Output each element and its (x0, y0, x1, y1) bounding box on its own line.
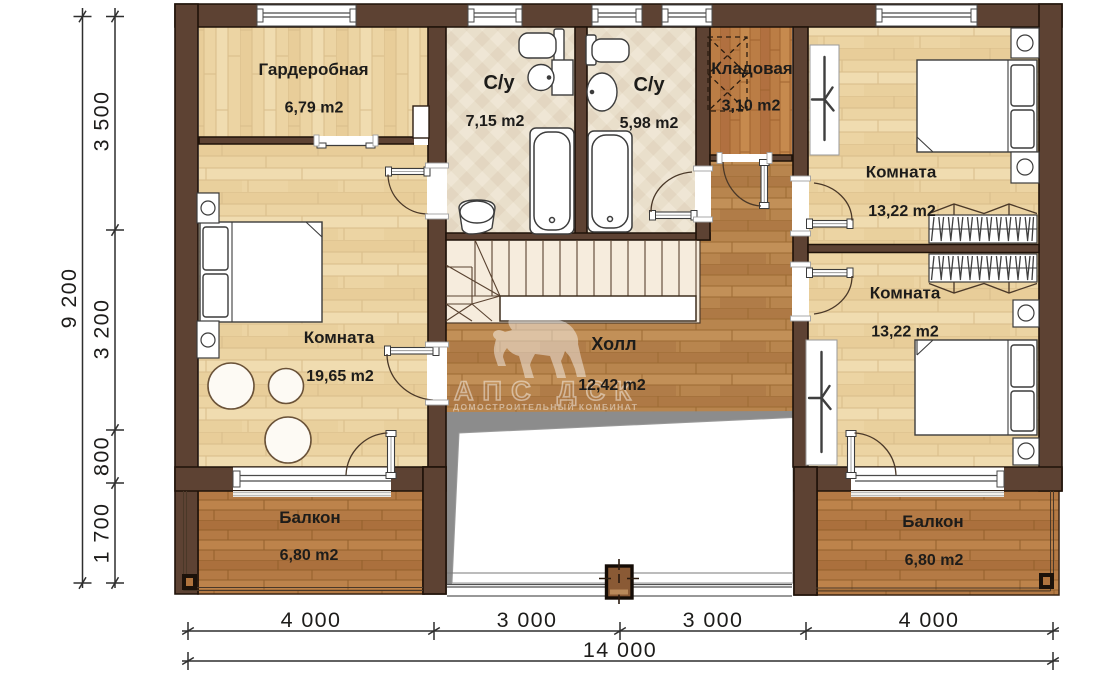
svg-text:3,10 m2: 3,10 m2 (722, 98, 781, 115)
svg-text:Гардеробная: Гардеробная (259, 60, 369, 79)
svg-text:13,22 m2: 13,22 m2 (871, 324, 939, 341)
svg-text:Комната: Комната (870, 284, 941, 303)
svg-text:1 700: 1 700 (90, 503, 114, 564)
svg-text:6,79 m2: 6,79 m2 (285, 100, 344, 117)
svg-text:С/у: С/у (633, 74, 665, 96)
svg-text:9 200: 9 200 (57, 268, 81, 329)
svg-text:3 000: 3 000 (497, 608, 558, 632)
svg-text:3 200: 3 200 (90, 299, 114, 360)
svg-text:Балкон: Балкон (279, 508, 340, 527)
svg-text:6,80 m2: 6,80 m2 (905, 552, 964, 569)
svg-text:12,42 m2: 12,42 m2 (578, 377, 646, 394)
svg-text:19,65 m2: 19,65 m2 (306, 368, 374, 385)
svg-text:3 500: 3 500 (90, 91, 114, 152)
svg-text:5,98 m2: 5,98 m2 (620, 115, 679, 132)
svg-text:Комната: Комната (866, 163, 937, 182)
svg-text:Холл: Холл (591, 334, 636, 354)
svg-text:Кладовая: Кладовая (711, 59, 792, 78)
svg-text:Балкон: Балкон (902, 512, 963, 531)
svg-text:4 000: 4 000 (281, 608, 342, 632)
svg-text:3 000: 3 000 (683, 608, 744, 632)
svg-text:Комната: Комната (304, 328, 375, 347)
svg-text:800: 800 (90, 436, 114, 476)
svg-text:14 000: 14 000 (583, 638, 657, 662)
svg-text:4 000: 4 000 (899, 608, 960, 632)
svg-text:7,15 m2: 7,15 m2 (466, 113, 525, 130)
svg-text:С/у: С/у (483, 72, 515, 94)
svg-text:6,80 m2: 6,80 m2 (280, 547, 339, 564)
svg-text:13,22 m2: 13,22 m2 (868, 203, 936, 220)
svg-text:ДОМОСТРОИТЕЛЬНЫЙ КОМБИНАТ: ДОМОСТРОИТЕЛЬНЫЙ КОМБИНАТ (453, 401, 638, 412)
